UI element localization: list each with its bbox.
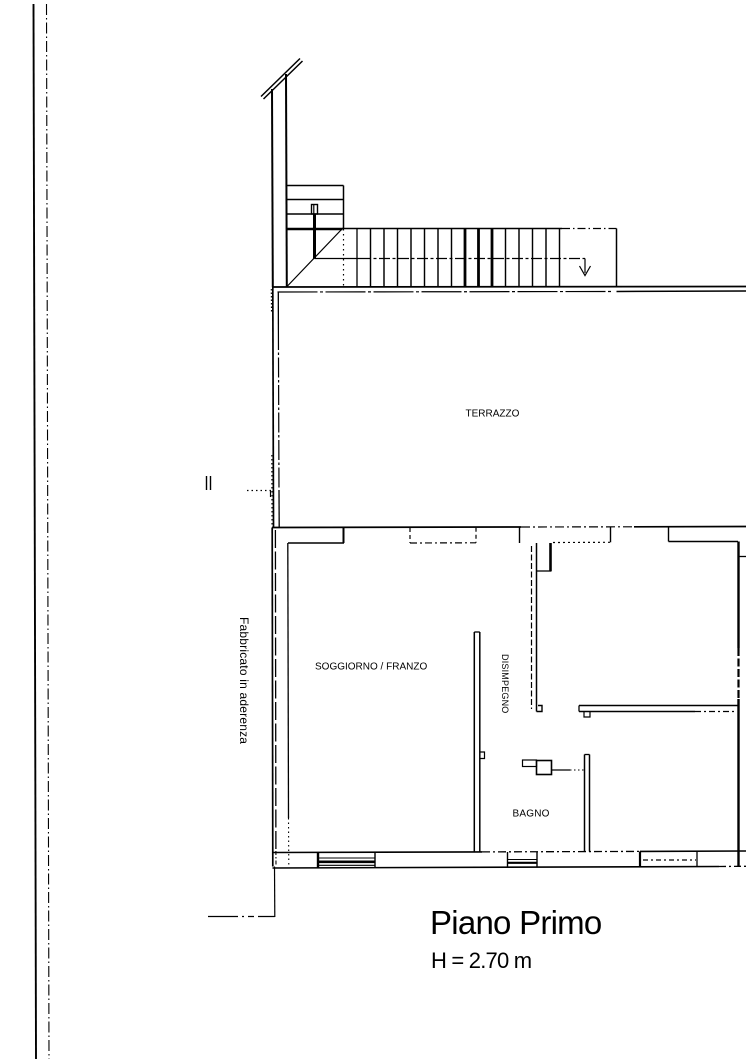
svg-text:DISIMPEGNO: DISIMPEGNO bbox=[500, 654, 510, 714]
svg-text:Piano Primo: Piano Primo bbox=[430, 904, 602, 941]
svg-text:SOGGIORNO / FRANZO: SOGGIORNO / FRANZO bbox=[315, 662, 427, 673]
svg-text:H = 2.70 m: H = 2.70 m bbox=[431, 948, 531, 973]
svg-text:TERRAZZO: TERRAZZO bbox=[466, 409, 520, 420]
svg-text:BAGNO: BAGNO bbox=[513, 809, 550, 820]
svg-text:Fabbricato in aderenza: Fabbricato in aderenza bbox=[237, 617, 251, 744]
